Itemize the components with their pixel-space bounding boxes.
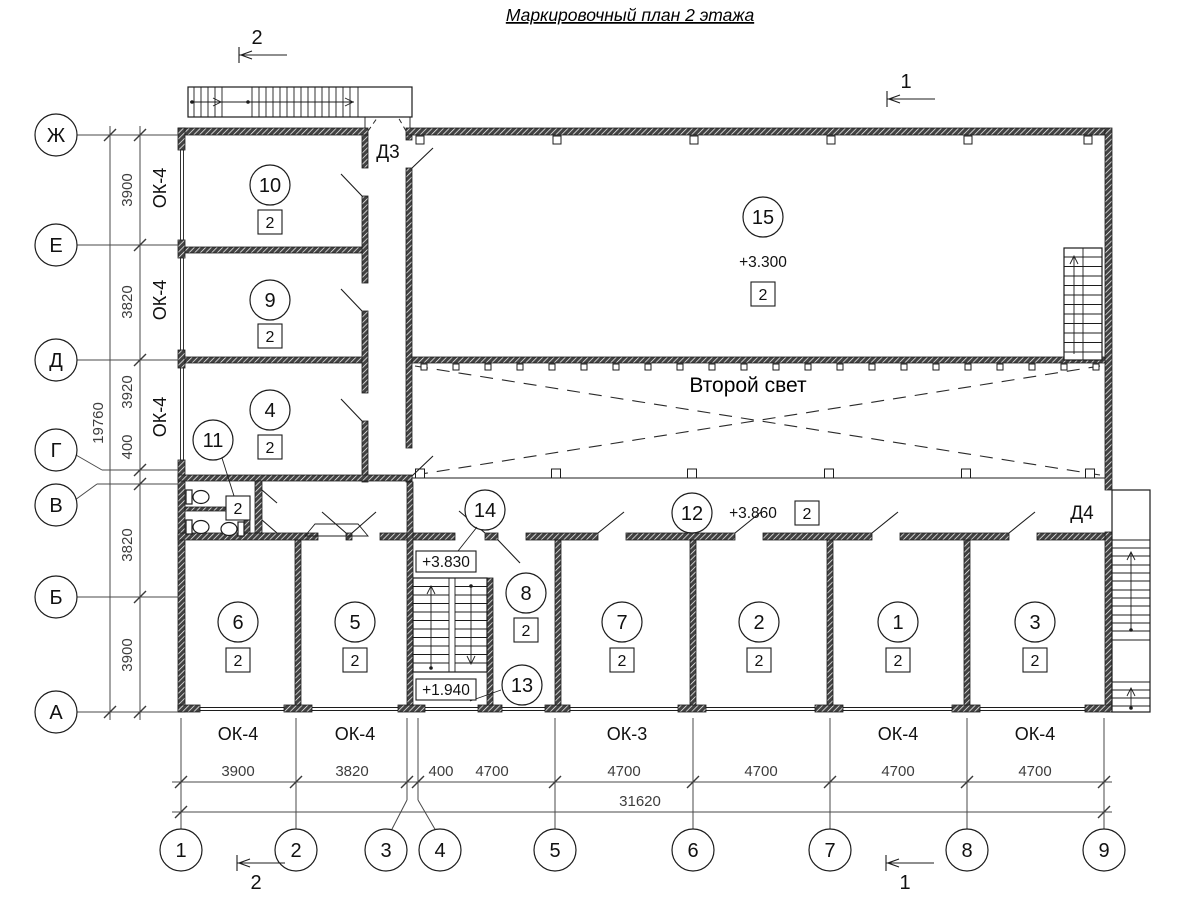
- axis-label: Г: [51, 440, 62, 462]
- axis-circle-d: Д: [35, 339, 77, 381]
- dim-text: 4700: [475, 763, 508, 780]
- dim-text: 3820: [119, 285, 136, 318]
- room-number: 15: [752, 207, 774, 229]
- toilet-fixtures: [186, 490, 368, 536]
- room-mark-1: 1 2: [878, 602, 918, 672]
- section-mark-1-bottom: 1: [886, 855, 934, 894]
- window-label: ОК-4: [1015, 724, 1056, 744]
- room-mark-15: 15 +3.300 2: [739, 197, 787, 306]
- axis-label: Е: [49, 235, 62, 257]
- axis-circle-b: Б: [35, 576, 77, 618]
- room-mark-5: 5 2: [335, 602, 375, 672]
- axis-circle-zh: Ж: [35, 114, 77, 156]
- elevation-mark: +1.940: [422, 682, 470, 699]
- window-label: ОК-4: [150, 168, 170, 209]
- room-mark-6: 6 2: [218, 602, 258, 672]
- room-number: 14: [474, 500, 496, 522]
- stair-main-internal: [413, 578, 487, 672]
- axis-circle-v: В: [35, 484, 77, 526]
- window-label: ОК-3: [607, 724, 648, 744]
- axis-circle-4: 4: [419, 829, 461, 871]
- axis-label: 2: [290, 840, 301, 862]
- axis-label: 5: [549, 840, 560, 862]
- room-number: 11: [203, 430, 224, 452]
- column-marks-top-wall: [416, 136, 1092, 144]
- stair-right-exterior: [1112, 490, 1150, 712]
- room-number: 12: [681, 503, 703, 525]
- axis-label: 4: [434, 840, 445, 862]
- column-marks-d-wall: [421, 364, 1099, 370]
- dim-text: 3900: [119, 638, 136, 671]
- room-mark-11: 11 2: [193, 420, 250, 520]
- axis-circle-9: 9: [1083, 829, 1125, 871]
- section-mark-2-top: 2: [239, 27, 287, 63]
- room-category: 2: [266, 329, 275, 346]
- room-category: 2: [755, 653, 764, 670]
- axis-circle-5: 5: [534, 829, 576, 871]
- dim-text: 3820: [119, 528, 136, 561]
- floor-plan-drawing: Маркировочный план 2 этажа: [0, 0, 1200, 900]
- window-label: ОК-4: [150, 397, 170, 438]
- room-number: 13: [511, 675, 533, 697]
- room-category: 2: [234, 653, 243, 670]
- room-number: 8: [520, 583, 531, 605]
- axis-circle-g: Г: [35, 429, 77, 471]
- room-number: 3: [1029, 612, 1040, 634]
- room-mark-7: 7 2: [602, 602, 642, 672]
- axis-circle-2: 2: [275, 829, 317, 871]
- stair-top-exterior: [188, 87, 412, 128]
- room-category: 2: [618, 653, 627, 670]
- window-label: ОК-4: [335, 724, 376, 744]
- room-mark-3: 3 2: [1015, 602, 1055, 672]
- axis-circle-3: 3: [365, 829, 407, 871]
- section-label: 2: [251, 27, 262, 49]
- section-mark-1-top: 1: [887, 71, 935, 107]
- room-marks: 10 2 9 2 4 2 11 2 15 +3: [193, 165, 1055, 705]
- elevation-mark: +3.860: [729, 505, 777, 522]
- axis-label: 7: [824, 840, 835, 862]
- room-mark-14: 14 +3.830: [416, 490, 505, 572]
- room-number: 6: [232, 612, 243, 634]
- dim-text: 3920: [119, 375, 136, 408]
- axis-circle-a: А: [35, 691, 77, 733]
- room-category: 2: [266, 440, 275, 457]
- axis-circle-6: 6: [672, 829, 714, 871]
- door-label-d3: Д3: [376, 142, 399, 163]
- room-category: 2: [351, 653, 360, 670]
- wc-fixture: [186, 520, 209, 534]
- dim-text: 3900: [119, 173, 136, 206]
- room-category: 2: [1031, 653, 1040, 670]
- axis-label: 6: [687, 840, 698, 862]
- dim-text: 4700: [881, 763, 914, 780]
- section-label: 2: [250, 872, 261, 894]
- room-category: 2: [522, 623, 531, 640]
- dim-text: 400: [119, 434, 136, 459]
- room-number: 1: [892, 612, 903, 634]
- window-label: ОК-4: [218, 724, 259, 744]
- elevation-mark: +3.300: [739, 254, 787, 271]
- room-number: 7: [616, 612, 627, 634]
- dim-text: 4700: [1018, 763, 1051, 780]
- axis-label: Ж: [47, 125, 66, 147]
- room-mark-2: 2 2: [739, 602, 779, 672]
- room-mark-8: 8 2: [506, 573, 546, 642]
- room-mark-4: 4 2: [250, 390, 290, 459]
- section-label: 1: [899, 872, 910, 894]
- room-number: 5: [349, 612, 360, 634]
- room-mark-9: 9 2: [250, 280, 290, 348]
- elevation-mark: +3.830: [422, 554, 470, 571]
- window-label: ОК-4: [150, 280, 170, 321]
- axis-label: Д: [49, 350, 63, 372]
- axis-label: 9: [1098, 840, 1109, 862]
- window-labels-left: ОК-4 ОК-4 ОК-4: [150, 168, 170, 438]
- dim-text: 4700: [744, 763, 777, 780]
- dim-text: 3820: [335, 763, 368, 780]
- wc-fixture: [221, 522, 244, 536]
- room-category: 2: [759, 287, 768, 304]
- dim-total-text: 19760: [90, 402, 107, 444]
- dim-text: 3900: [221, 763, 254, 780]
- axis-label: 3: [380, 840, 391, 862]
- dim-text: 400: [428, 763, 453, 780]
- window-label: ОК-4: [878, 724, 919, 744]
- room-number: 4: [264, 400, 275, 422]
- room-category: 2: [894, 653, 903, 670]
- stair-hall-internal: [1064, 248, 1102, 360]
- window-labels-bottom: ОК-4 ОК-4 ОК-3 ОК-4 ОК-4: [218, 724, 1056, 744]
- axis-label: 8: [961, 840, 972, 862]
- axis-circle-e: Е: [35, 224, 77, 266]
- room-number: 2: [753, 612, 764, 634]
- dim-total-text: 31620: [619, 793, 661, 810]
- walls: [178, 128, 1112, 712]
- room-category: 2: [266, 215, 275, 232]
- second-light-label: Второй свет: [689, 374, 807, 397]
- axis-label: Б: [49, 587, 62, 609]
- room-number: 10: [259, 175, 281, 197]
- room-number: 9: [264, 290, 275, 312]
- dim-text: 4700: [607, 763, 640, 780]
- section-label: 1: [900, 71, 911, 93]
- axis-label: 1: [175, 840, 186, 862]
- axis-circle-7: 7: [809, 829, 851, 871]
- room-category: 2: [803, 506, 812, 523]
- room-mark-12: 12 +3.860 2: [672, 493, 819, 533]
- room-mark-10: 10 2: [250, 165, 290, 234]
- wc-fixture: [186, 490, 209, 504]
- door-label-d4: Д4: [1070, 503, 1094, 524]
- page-title: Маркировочный план 2 этажа: [506, 5, 755, 25]
- axis-label: В: [49, 495, 62, 517]
- axis-circle-1: 1: [160, 829, 202, 871]
- room-category: 2: [234, 501, 243, 518]
- axis-label: А: [49, 702, 63, 724]
- axis-circle-8: 8: [946, 829, 988, 871]
